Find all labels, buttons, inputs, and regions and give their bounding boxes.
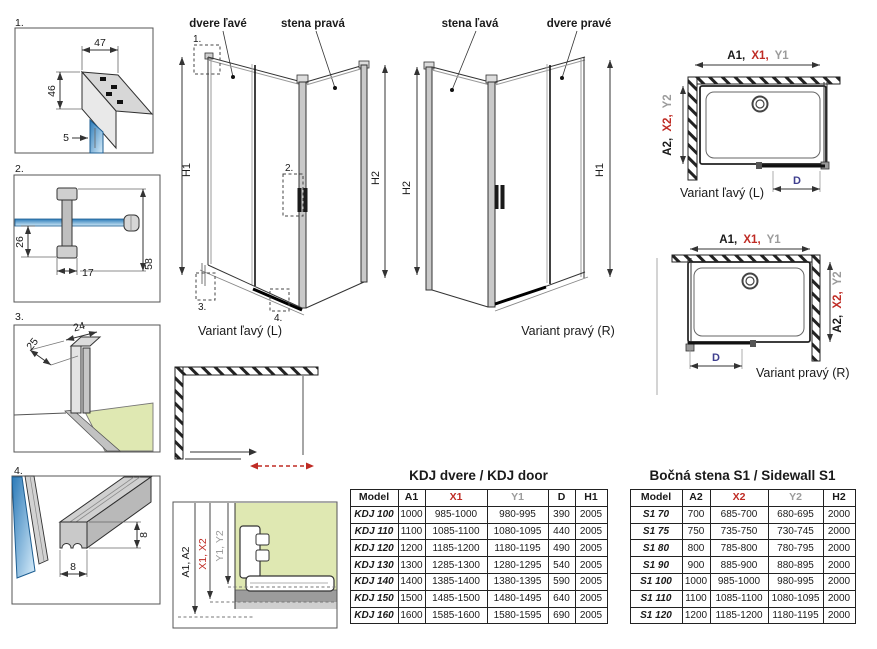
column-header: Y1 bbox=[487, 490, 548, 507]
range-x-label: X1, X2 bbox=[197, 538, 209, 570]
table-cell: 1500 bbox=[398, 590, 425, 607]
detail-number: 3. bbox=[15, 311, 24, 323]
door-label: dvere ľavé bbox=[189, 18, 247, 30]
table-cell: 1485-1500 bbox=[425, 590, 487, 607]
table-cell: 2000 bbox=[823, 506, 855, 523]
table-cell: 2000 bbox=[823, 557, 855, 574]
dim-h1: H1 bbox=[594, 163, 606, 177]
dim-x1: X1, bbox=[751, 50, 768, 62]
table-cell: 800 bbox=[682, 540, 710, 557]
plan-view-variant-right: A1, X1, Y1 D A2, X2, bbox=[650, 218, 877, 400]
table-cell: 2000 bbox=[823, 590, 855, 607]
detail-markers bbox=[194, 45, 303, 311]
drain-icon bbox=[753, 97, 768, 112]
table-cell: 2005 bbox=[575, 557, 607, 574]
dim-46: 46 bbox=[46, 85, 58, 97]
table-cell: 1180-1195 bbox=[487, 540, 548, 557]
table-cell: 2000 bbox=[823, 540, 855, 557]
table-cell: 2000 bbox=[823, 523, 855, 540]
dim-y1: Y1 bbox=[775, 50, 790, 62]
detail-box bbox=[14, 175, 160, 302]
table-cell: 1600 bbox=[398, 607, 425, 624]
table-cell: 2005 bbox=[575, 540, 607, 557]
wall-top bbox=[672, 255, 820, 262]
wall-label: stena pravá bbox=[281, 18, 346, 30]
table-cell: 1280-1295 bbox=[487, 557, 548, 574]
table-cell: S1 110 bbox=[630, 590, 682, 607]
detail-1-top-profile-drawing: 1. 47 46 5 bbox=[8, 10, 166, 158]
dim-d: D bbox=[793, 175, 801, 187]
range-a-label: A1, A2 bbox=[180, 546, 192, 577]
glass-panel bbox=[15, 219, 131, 226]
table-row: KDJ 1001000985-1000980-9953902005 bbox=[350, 506, 607, 523]
table-cell: 1080-1095 bbox=[487, 523, 548, 540]
dim-47: 47 bbox=[94, 37, 106, 49]
wall-left bbox=[688, 77, 697, 180]
detail-number: 2. bbox=[15, 163, 24, 175]
table-cell: 2005 bbox=[575, 573, 607, 590]
table-cell: 2005 bbox=[575, 506, 607, 523]
table-cell: 980-995 bbox=[487, 506, 548, 523]
table-row: KDJ 15015001485-15001480-14956402005 bbox=[350, 590, 607, 607]
table-row: S1 75750735-750730-7452000 bbox=[630, 523, 855, 540]
slide-direction-arrow bbox=[250, 463, 314, 470]
table-cell: 540 bbox=[548, 557, 575, 574]
detail-number: 1. bbox=[15, 17, 24, 29]
table-cell: 880-895 bbox=[768, 557, 823, 574]
dim-a2: A2, bbox=[662, 138, 674, 156]
table-row: KDJ 12012001185-12001180-11954902005 bbox=[350, 540, 607, 557]
table-row: S1 12012001185-12001180-11952000 bbox=[630, 607, 855, 624]
table-row: KDJ 11011001085-11001080-10954402005 bbox=[350, 523, 607, 540]
table-cell: KDJ 150 bbox=[350, 590, 398, 607]
table-cell: 1200 bbox=[398, 540, 425, 557]
wall-top bbox=[688, 77, 840, 84]
table-row: S1 90900885-900880-8952000 bbox=[630, 557, 855, 574]
door-panels bbox=[185, 449, 257, 460]
table-cell: 1200 bbox=[682, 607, 710, 624]
leader-lines bbox=[450, 31, 577, 92]
table-header-row: Model A1 X1 Y1 D H1 bbox=[350, 490, 607, 507]
column-header: H1 bbox=[575, 490, 607, 507]
table-cell: 885-900 bbox=[710, 557, 768, 574]
table-cell: 1300 bbox=[398, 557, 425, 574]
dim-a1: A1, bbox=[727, 50, 745, 62]
table-cell: 1100 bbox=[682, 590, 710, 607]
table-row: S1 70700685-700680-6952000 bbox=[630, 506, 855, 523]
table-row: S1 11011001085-11001080-10952000 bbox=[630, 590, 855, 607]
dim-17: 17 bbox=[82, 267, 94, 279]
column-header: A1 bbox=[398, 490, 425, 507]
table-cell: 1185-1200 bbox=[710, 607, 768, 624]
dim-8-horizontal: 8 bbox=[70, 561, 76, 573]
dim-a2: A2, bbox=[832, 315, 844, 333]
dim-d: D bbox=[712, 352, 720, 364]
sliding-direction-schematic bbox=[170, 358, 350, 473]
enclosure-drawing bbox=[200, 53, 369, 315]
dim-y2: Y2 bbox=[662, 94, 674, 108]
column-header: X1 bbox=[425, 490, 487, 507]
table-cell: 980-995 bbox=[768, 573, 823, 590]
dim-58: 58 bbox=[143, 258, 155, 270]
wall-right bbox=[812, 255, 820, 361]
range-y-label: Y1, Y2 bbox=[214, 530, 226, 561]
detail-3-wall-profile-drawing: 3. 24 25 bbox=[8, 306, 166, 458]
dim-26: 26 bbox=[14, 236, 26, 248]
dim-x2: X2, bbox=[832, 291, 844, 308]
table-row: KDJ 13013001285-13001280-12955402005 bbox=[350, 557, 607, 574]
table-row: KDJ 16016001585-16001580-15956902005 bbox=[350, 607, 607, 624]
table-cell: 1585-1600 bbox=[425, 607, 487, 624]
column-header: Model bbox=[630, 490, 682, 507]
dim-5: 5 bbox=[63, 132, 69, 144]
iso-view-variant-left: dvere ľavé stena pravá bbox=[176, 12, 391, 344]
wall-left bbox=[175, 367, 183, 459]
table-row: KDJ 14014001385-14001380-13955902005 bbox=[350, 573, 607, 590]
table-cell: KDJ 140 bbox=[350, 573, 398, 590]
table-cell: 1080-1095 bbox=[768, 590, 823, 607]
variant-right-caption: Variant pravý (R) bbox=[521, 324, 615, 338]
table-cell: 750 bbox=[682, 523, 710, 540]
table-cell: S1 120 bbox=[630, 607, 682, 624]
marker-3: 3. bbox=[198, 302, 206, 313]
column-header: H2 bbox=[823, 490, 855, 507]
table-cell: 1085-1100 bbox=[710, 590, 768, 607]
table-cell: 2005 bbox=[575, 523, 607, 540]
table-cell: S1 80 bbox=[630, 540, 682, 557]
top-dim-label: A1, X1, Y1 bbox=[719, 234, 781, 246]
table-cell: 735-750 bbox=[710, 523, 768, 540]
table-cell: S1 90 bbox=[630, 557, 682, 574]
plan-left-caption: Variant ľavý (L) bbox=[680, 186, 764, 200]
table-cell: 685-700 bbox=[710, 506, 768, 523]
table-cell: 690 bbox=[548, 607, 575, 624]
detail-2-handle-drawing: 2. 26 17 58 bbox=[8, 158, 166, 308]
wall-label: stena ľavá bbox=[442, 18, 499, 30]
table-cell: S1 100 bbox=[630, 573, 682, 590]
table-cell: 490 bbox=[548, 540, 575, 557]
table-cell: 1400 bbox=[398, 573, 425, 590]
table-cell: 1185-1200 bbox=[425, 540, 487, 557]
sidewall-table: Model A2 X2 Y2 H2 S1 70700685-700680-695… bbox=[630, 489, 856, 624]
table-cell: 1380-1395 bbox=[487, 573, 548, 590]
table-cell: 680-695 bbox=[768, 506, 823, 523]
table-cell: KDJ 120 bbox=[350, 540, 398, 557]
table-cell: KDJ 160 bbox=[350, 607, 398, 624]
table-cell: 2005 bbox=[575, 590, 607, 607]
dim-h2: H2 bbox=[401, 181, 413, 195]
spec-sheet: 1. 47 46 5 2. bbox=[0, 0, 877, 649]
door-table-title: KDJ dvere / KDJ door bbox=[348, 468, 609, 483]
table-cell: 1100 bbox=[398, 523, 425, 540]
table-cell: S1 70 bbox=[630, 506, 682, 523]
table-cell: 730-745 bbox=[768, 523, 823, 540]
table-cell: 900 bbox=[682, 557, 710, 574]
table-cell: 440 bbox=[548, 523, 575, 540]
marker-2: 2. bbox=[285, 163, 293, 174]
top-dim-label: A1, X1, Y1 bbox=[727, 50, 789, 62]
dim-y1: Y1 bbox=[767, 234, 782, 246]
table-cell: 700 bbox=[682, 506, 710, 523]
marker-4: 4. bbox=[274, 313, 282, 324]
adjustment-profile-diagram: A1, A2 X1, X2 Y1, Y2 bbox=[170, 482, 342, 642]
variant-left-caption: Variant ľavý (L) bbox=[198, 324, 282, 338]
detail-number: 4. bbox=[14, 465, 23, 477]
dim-8-vertical: 8 bbox=[138, 532, 150, 538]
table-cell: 590 bbox=[548, 573, 575, 590]
table-cell: 1000 bbox=[398, 506, 425, 523]
table-row: S1 1001000985-1000980-9952000 bbox=[630, 573, 855, 590]
side-dim-label: A2, X2, Y2 bbox=[832, 271, 844, 332]
door-label: dvere pravé bbox=[547, 18, 612, 30]
table-cell: 1000 bbox=[682, 573, 710, 590]
drain-icon bbox=[743, 274, 758, 289]
table-cell: 780-795 bbox=[768, 540, 823, 557]
enclosure-drawing bbox=[424, 57, 588, 311]
sidewall-table-section: Bočná stena S1 / Sidewall S1 Model A2 X2… bbox=[628, 468, 857, 624]
table-row: S1 80800785-800780-7952000 bbox=[630, 540, 855, 557]
plan-right-caption: Variant pravý (R) bbox=[756, 366, 850, 380]
table-cell: 1180-1195 bbox=[768, 607, 823, 624]
dim-x1: X1, bbox=[743, 234, 760, 246]
table-cell: 785-800 bbox=[710, 540, 768, 557]
table-cell: KDJ 100 bbox=[350, 506, 398, 523]
table-cell: 390 bbox=[548, 506, 575, 523]
dim-y2: Y2 bbox=[832, 271, 844, 285]
side-dim-label: A2, X2, Y2 bbox=[662, 94, 674, 155]
table-cell: 1580-1595 bbox=[487, 607, 548, 624]
wall-top bbox=[175, 367, 318, 375]
table-cell: S1 75 bbox=[630, 523, 682, 540]
tray-edge-bar bbox=[235, 590, 337, 602]
tray-lip bbox=[235, 602, 337, 609]
column-header: A2 bbox=[682, 490, 710, 507]
table-cell: 1480-1495 bbox=[487, 590, 548, 607]
column-header: D bbox=[548, 490, 575, 507]
table-cell: KDJ 130 bbox=[350, 557, 398, 574]
table-cell: 2005 bbox=[575, 607, 607, 624]
column-header: Model bbox=[350, 490, 398, 507]
dim-h2: H2 bbox=[370, 171, 382, 185]
detail-4-bottom-rail-drawing: 4. 8 8 bbox=[8, 460, 170, 630]
sidewall-table-title: Bočná stena S1 / Sidewall S1 bbox=[628, 468, 857, 483]
table-cell: 985-1000 bbox=[710, 573, 768, 590]
table-cell: 985-1000 bbox=[425, 506, 487, 523]
plan-view-variant-left: A1, X1, Y1 D A2, X2, Y2 bbox=[652, 30, 877, 205]
dim-a1: A1, bbox=[719, 234, 737, 246]
table-cell: 2000 bbox=[823, 573, 855, 590]
door-table-section: KDJ dvere / KDJ door Model A1 X1 Y1 D H1… bbox=[348, 468, 609, 624]
table-cell: 1385-1400 bbox=[425, 573, 487, 590]
table-cell: 1285-1300 bbox=[425, 557, 487, 574]
table-cell: KDJ 110 bbox=[350, 523, 398, 540]
table-cell: 2000 bbox=[823, 607, 855, 624]
iso-view-variant-right: stena ľavá dvere pravé H2 bbox=[398, 12, 626, 344]
marker-1: 1. bbox=[193, 34, 201, 45]
column-header: X2 bbox=[710, 490, 768, 507]
table-cell: 1085-1100 bbox=[425, 523, 487, 540]
table-cell: 640 bbox=[548, 590, 575, 607]
table-header-row: Model A2 X2 Y2 H2 bbox=[630, 490, 855, 507]
column-header: Y2 bbox=[768, 490, 823, 507]
dim-x2: X2, bbox=[662, 114, 674, 131]
dim-h1: H1 bbox=[181, 163, 193, 177]
door-table: Model A1 X1 Y1 D H1 KDJ 1001000985-10009… bbox=[350, 489, 608, 624]
